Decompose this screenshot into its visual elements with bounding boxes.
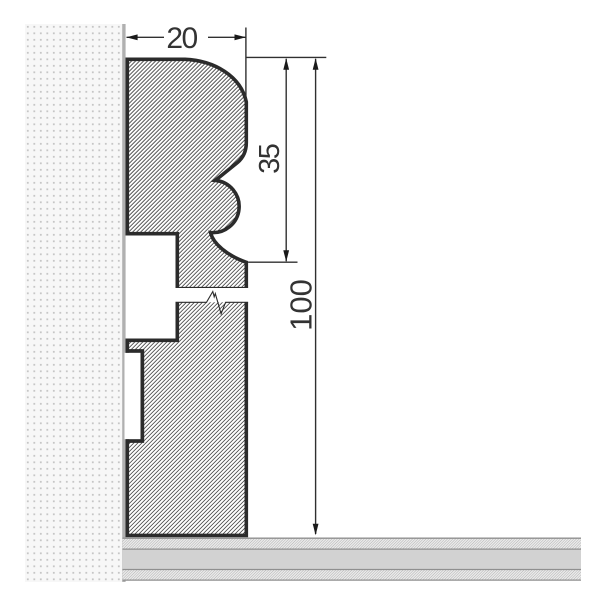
svg-text:35: 35 bbox=[254, 144, 286, 174]
svg-text:20: 20 bbox=[166, 22, 197, 55]
svg-text:100: 100 bbox=[284, 279, 319, 331]
